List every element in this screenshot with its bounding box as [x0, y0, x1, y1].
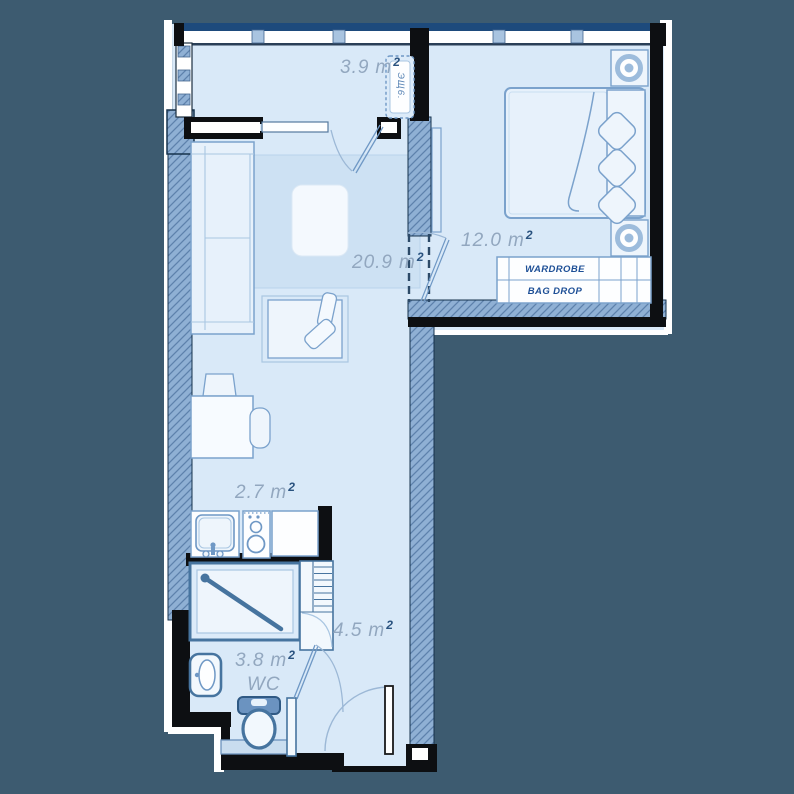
- armchair: [262, 292, 348, 362]
- shower: [190, 563, 300, 640]
- room-label-bedroom: 12.0m2: [461, 228, 534, 252]
- kitchen-fixtures: [191, 511, 318, 558]
- room-label-living-room: 20.9m2: [352, 250, 425, 274]
- sofa: [191, 142, 254, 334]
- area-value: 20.9: [352, 252, 393, 273]
- chair-seat: [250, 408, 270, 448]
- desk: [191, 396, 253, 458]
- window-sill: [262, 122, 328, 132]
- kitchen-sink: [196, 515, 234, 557]
- living-window: [191, 122, 260, 133]
- area-sup: 2: [288, 648, 296, 662]
- area-value: 4.5: [333, 620, 362, 641]
- bedroom-right-wall: [650, 31, 663, 327]
- balcony-cabinet-label: ЭЩ6.: [392, 58, 406, 114]
- area-value: 2.7: [235, 482, 264, 503]
- bag-drop-label: BAG DROP: [500, 286, 610, 297]
- sliding-door-panel: [432, 128, 441, 232]
- stove: [243, 511, 270, 558]
- chair: [203, 374, 236, 396]
- area-unit: m: [368, 620, 385, 641]
- area-unit: m: [270, 482, 287, 503]
- area-sup: 2: [386, 618, 394, 632]
- area-unit: m: [270, 650, 287, 671]
- area-unit: m: [399, 252, 416, 273]
- coffee-table: [292, 185, 348, 256]
- entrance-door-leaf: [385, 686, 393, 754]
- area-sup: 2: [526, 228, 534, 242]
- towel-rack: [300, 561, 333, 650]
- balcony-glazed-wall: [176, 43, 192, 117]
- wardrobe-label: WARDROBE: [500, 264, 610, 275]
- counter: [272, 511, 318, 556]
- area-value: 3.8: [235, 650, 264, 671]
- left-exterior-wall: [168, 112, 192, 620]
- bed-pillows: [596, 110, 638, 226]
- hallway-right-wall: [410, 318, 434, 746]
- room-label-bathroom: 3.8m2: [235, 648, 296, 672]
- area-sup: 2: [417, 250, 425, 264]
- area-unit: m: [508, 230, 525, 251]
- room-label-hallway: 4.5m2: [333, 618, 394, 642]
- area-sup: 2: [288, 480, 296, 494]
- room-name-wc: WC: [247, 674, 281, 696]
- washbasin: [190, 654, 221, 696]
- area-value: 12.0: [461, 230, 502, 251]
- floor-plan-canvas: 3.9m2 12.0m2 20.9m2 2.7m2 4.5m2 3.8m2 WC…: [0, 0, 794, 794]
- area-unit: m: [375, 57, 392, 78]
- area-value: 3.9: [340, 57, 369, 78]
- pocket-door-wall: [408, 117, 431, 236]
- floor-plan-drawing: [0, 0, 794, 794]
- room-label-kitchen: 2.7m2: [235, 480, 296, 504]
